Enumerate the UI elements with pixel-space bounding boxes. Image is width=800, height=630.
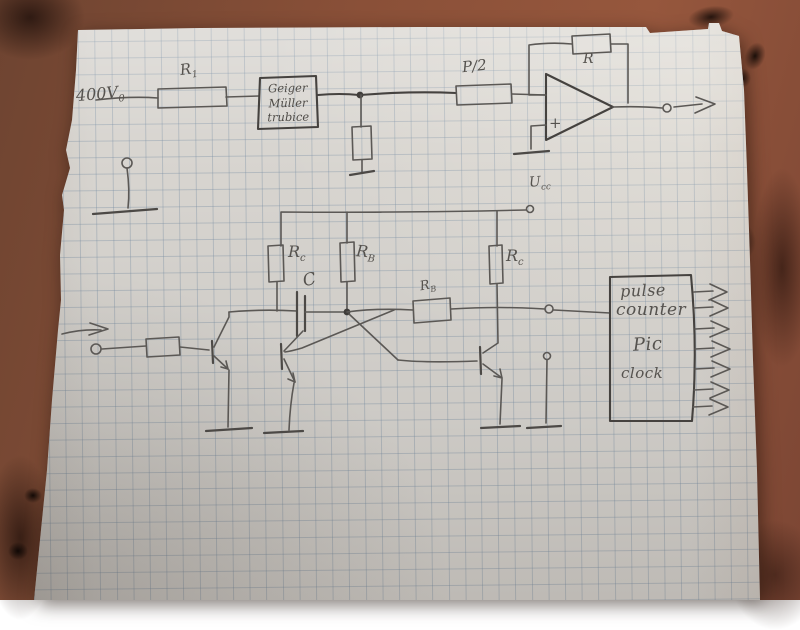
counter-label-pulse: pulse <box>620 280 666 301</box>
rc-left-text: R <box>288 242 300 261</box>
resistor-rc-right <box>489 245 503 284</box>
transistor-q3 <box>480 284 520 428</box>
opamp-plus-input-ground <box>514 125 549 154</box>
photo-scene: 400V0 R1 Geiger Müller trubice P/2 R + U… <box>0 0 800 600</box>
vcc-rail <box>281 206 534 247</box>
wire-gm-to-divider <box>318 92 456 99</box>
opamp-plus-label: + <box>549 114 562 132</box>
rc-right-label: Rc <box>506 246 524 268</box>
rb-left-label: RB <box>355 241 376 265</box>
transistor-q1 <box>206 312 252 431</box>
rc-left-sub: c <box>300 253 306 264</box>
rc-left-label: Rc <box>288 242 306 264</box>
rc-right-text: R <box>506 246 518 265</box>
gm-tube-label: Geiger Müller trubice <box>258 80 319 125</box>
supply-voltage-text: 400V <box>75 82 119 105</box>
input-terminal <box>91 344 101 354</box>
opamp-feedback-resistor <box>529 34 628 103</box>
ground-terminal-right <box>527 353 561 429</box>
input-resistor <box>146 337 209 357</box>
paper-shadow: 400V0 R1 Geiger Müller trubice P/2 R + U… <box>0 0 800 600</box>
resistor-rc-left <box>268 245 284 311</box>
counter-label-clock: clock <box>621 364 663 382</box>
resistor-r1 <box>158 87 227 108</box>
vcc-label: Ucc <box>528 173 551 193</box>
counter-label-counter: counter <box>616 300 686 320</box>
gm-line-1: Geiger <box>258 80 318 96</box>
supply-voltage-sub: 0 <box>118 93 125 105</box>
divider-resistor-to-ground <box>350 95 374 175</box>
feedback-resistor-label: R <box>583 51 594 67</box>
resistor-rb-left <box>340 242 355 310</box>
r1-label: R1 <box>179 59 199 82</box>
rb-cross-label: RB <box>419 277 437 296</box>
rc-right-sub: c <box>518 257 524 268</box>
resistor-p2 <box>456 84 512 105</box>
vcc-sub: cc <box>541 182 551 193</box>
counter-pin-arrows <box>693 284 730 415</box>
wire-junction-to-rb-cross <box>347 309 413 312</box>
gm-line-3: trubice <box>258 109 318 125</box>
resistor-rb-cross <box>413 298 451 323</box>
supply-voltage-label: 400V0 <box>75 82 125 108</box>
vcc-terminal <box>527 206 534 213</box>
rb-cross-sub: B <box>430 284 437 294</box>
coupling-capacitor <box>229 292 346 336</box>
counter-signal-terminal <box>545 305 553 313</box>
counter-label-pic: Pic <box>632 333 663 356</box>
pot-label: P/2 <box>461 56 487 76</box>
input-arrow <box>62 323 146 354</box>
hv-ground-terminal <box>93 158 157 214</box>
gm-line-2: Müller <box>258 95 318 111</box>
wire-r1-to-gm-tube <box>226 96 259 97</box>
cross-coupling-wires <box>285 310 477 362</box>
vcc-text: U <box>528 174 541 191</box>
wire-to-counter-terminal <box>451 305 610 313</box>
transistor-q2 <box>264 331 303 433</box>
output-terminal <box>663 104 671 112</box>
rb-left-sub: B <box>367 253 375 265</box>
graph-paper-sheet: 400V0 R1 Geiger Müller trubice P/2 R + U… <box>0 0 800 600</box>
